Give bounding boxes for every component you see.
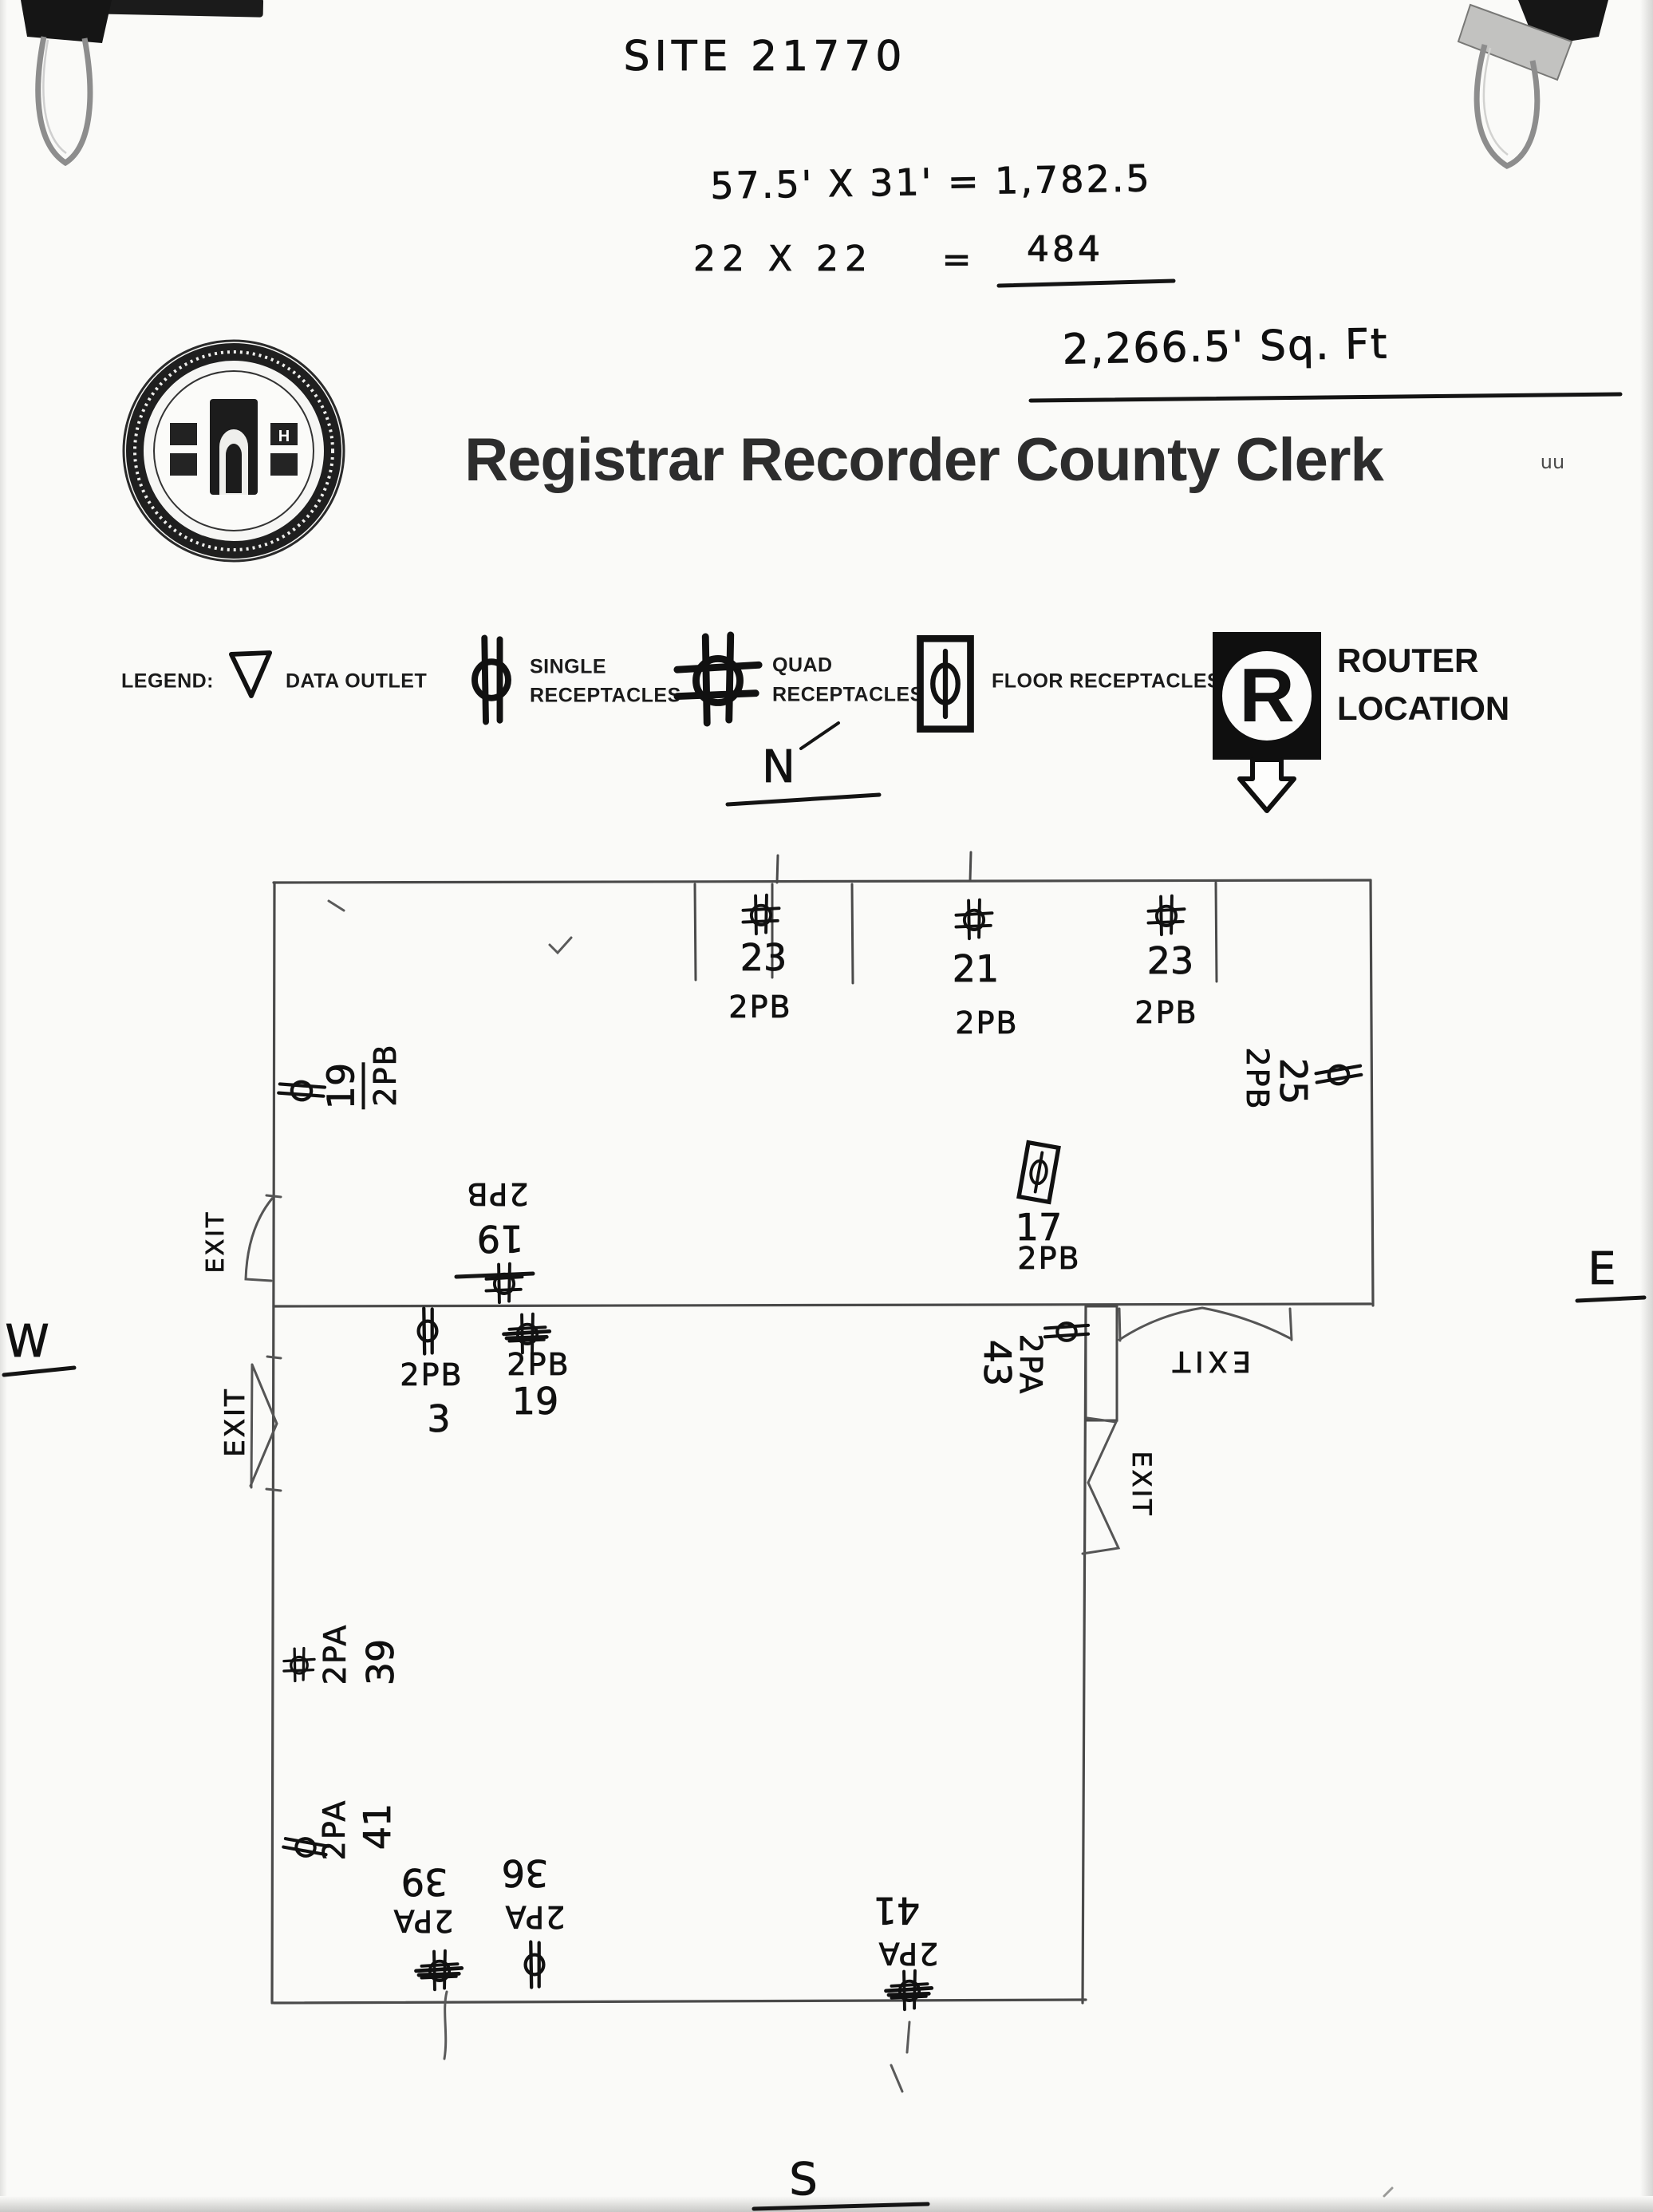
outlet-number: 36 xyxy=(502,1855,549,1891)
stray-mark: uu xyxy=(1541,452,1564,472)
area-calc-line1: 57.5' X 31' = 1,782.5 xyxy=(710,160,1152,204)
legend-floor-label: FLOOR RECEPTACLES xyxy=(992,672,1221,692)
outlet-number: 39 xyxy=(401,1863,448,1900)
floor-receptacle-icon xyxy=(914,634,976,734)
quad-receptacle-icon xyxy=(282,1647,317,1682)
county-seal-icon: H xyxy=(120,337,348,565)
scanned-floor-plan-photo: H SITE 21770 57.5' X 31' = 1,782.5 22 X … xyxy=(0,0,1653,2212)
single-receptacle-icon xyxy=(412,1306,443,1356)
quad-receptacle-crossed-icon xyxy=(889,1969,930,2012)
binder-clip-right-icon xyxy=(1458,0,1608,166)
outlet-circuit: 2PB xyxy=(1134,997,1197,1028)
outlet-number: 25 xyxy=(1275,1058,1312,1105)
legend-quad-label-2: RECEPTACLES xyxy=(772,685,924,705)
outlet-number: 19 xyxy=(512,1383,559,1420)
quad-receptacle-icon xyxy=(1146,894,1187,937)
outlet-circuit: 2PA xyxy=(504,1902,566,1932)
single-receptacle-icon xyxy=(1313,1057,1364,1092)
compass-east: E xyxy=(1588,1247,1616,1292)
legend-single-label-1: SINGLE xyxy=(530,658,606,677)
site-code: SITE 21770 xyxy=(624,36,907,77)
area-calc-line2: 22 X 22 xyxy=(693,242,874,277)
legend-router-label-1: ROUTER xyxy=(1337,644,1478,677)
area-calc-equals: = xyxy=(942,243,972,278)
outlet-circuit: 2PB xyxy=(507,1349,570,1380)
binder-clip-left-icon xyxy=(21,0,263,163)
outlet-circuit: 2PB xyxy=(370,1043,400,1106)
legend-single-label-2: RECEPTACLES xyxy=(530,686,681,706)
exit-label-east-upper: EXIT xyxy=(1168,1346,1251,1375)
svg-text:H: H xyxy=(278,428,290,445)
outlet-number: 39 xyxy=(362,1639,399,1686)
outlet-circuit: 2PB xyxy=(400,1360,463,1390)
outlet-circuit: 2PB xyxy=(465,1179,528,1209)
plan-linework xyxy=(0,0,1653,2212)
outlet-number: 19 xyxy=(323,1063,365,1110)
exit-label-west-lower: EXIT xyxy=(222,1387,249,1457)
outlet-number: 43 xyxy=(979,1340,1016,1387)
single-receptacle-icon xyxy=(461,635,522,725)
router-location-icon: R xyxy=(1211,630,1323,820)
floor-plan-walls xyxy=(272,880,1373,2003)
single-receptacle-icon xyxy=(1043,1317,1090,1346)
outlet-number: 41 xyxy=(359,1803,396,1851)
exit-label-west-upper: EXIT xyxy=(204,1211,228,1274)
outlet-circuit: 2PA xyxy=(319,1799,349,1861)
router-letter: R xyxy=(1239,653,1294,738)
outlet-circuit: 2PA xyxy=(878,1938,939,1969)
compass-south: S xyxy=(789,2158,818,2202)
outlet-circuit: 2PB xyxy=(1017,1243,1080,1274)
outlet-circuit: 2PA xyxy=(320,1624,350,1685)
data-outlet-icon xyxy=(228,650,273,701)
outlet-circuit: 2PB xyxy=(728,992,791,1022)
legend-data-outlet-label: DATA OUTLET xyxy=(286,672,427,692)
quad-receptacle-crossed-icon xyxy=(419,1949,460,1992)
outlet-number: 23 xyxy=(1147,942,1194,979)
legend-label: LEGEND: xyxy=(121,672,214,692)
area-calc-result: 484 xyxy=(1027,232,1103,267)
compass-west: W xyxy=(5,1320,49,1365)
outlet-circuit: 2PA xyxy=(393,1906,454,1936)
legend-quad-label-1: QUAD xyxy=(772,656,833,676)
quad-receptacle-icon xyxy=(483,1262,525,1305)
legend-router-label-2: LOCATION xyxy=(1337,692,1509,725)
quad-receptacle-icon xyxy=(670,632,766,726)
outlet-number: 3 xyxy=(427,1400,450,1437)
compass-north: N xyxy=(762,745,795,790)
outlet-circuit: 2PB xyxy=(1242,1047,1272,1110)
outlet-circuit: 2PA xyxy=(1016,1334,1046,1396)
page-title: Registrar Recorder County Clerk xyxy=(464,430,1383,491)
quad-receptacle-icon xyxy=(740,893,782,936)
outlet-circuit: 2PB xyxy=(955,1008,1018,1038)
exit-label-east-lower: EXIT xyxy=(1129,1451,1154,1517)
outlet-number: 23 xyxy=(740,939,787,976)
outlet-number: 41 xyxy=(874,1892,921,1929)
single-receptacle-icon xyxy=(519,1940,550,1989)
area-total: 2,266.5' Sq. Ft xyxy=(1062,323,1389,370)
outlet-number: 19 xyxy=(477,1220,524,1257)
outlet-number: 21 xyxy=(953,950,1000,987)
quad-receptacle-icon xyxy=(953,898,995,941)
